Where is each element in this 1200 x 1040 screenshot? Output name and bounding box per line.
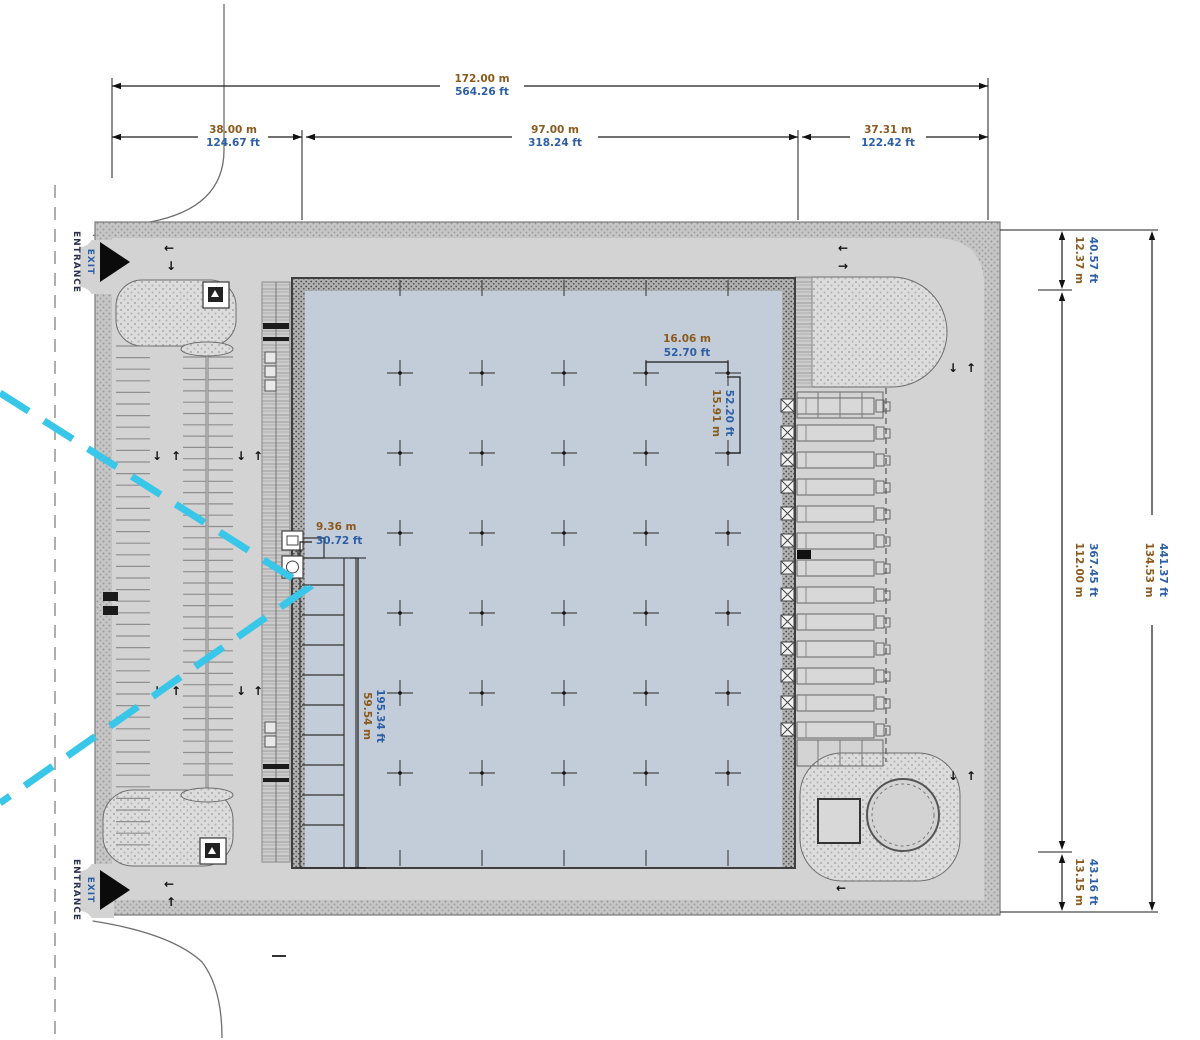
arrow-up-icon: ↑ [966,769,976,783]
column-point [480,611,484,615]
column-point [726,531,730,535]
dock-equipment-mark [797,550,811,559]
trailer [797,425,874,441]
trailer [797,452,874,468]
dim-north-setback-m: 12.37 m [1073,236,1085,284]
gatehouse-top [203,282,229,308]
dim-office-length-ft: 195.34 ft [374,689,386,743]
truck-cab [876,589,884,601]
dim-office-width-m: 9.36 m [316,521,357,533]
arrow-left-icon: ← [164,241,174,255]
column-point [562,451,566,455]
landscape-pond-top-right [812,277,947,387]
gatehouse-bottom [200,838,226,864]
column-point [398,371,402,375]
column-point [398,451,402,455]
dimension-arrowhead [979,83,988,89]
dim-bay-width-m: 16.06 m [663,333,711,345]
column-point [644,691,648,695]
truck-cab [876,508,884,520]
column-point [398,531,402,535]
dimension-arrowhead [1149,231,1155,240]
truck-cab [884,726,890,735]
dimension-arrowhead [1059,841,1065,850]
utility-yard-bottom-right [800,753,960,881]
truck-cab [876,481,884,493]
exit-label: EXIT [85,249,95,276]
trailer [797,641,874,657]
trailer [797,614,874,630]
dim-building-depth-ft: 367.45 ft [1087,543,1099,597]
arrow-down-icon: ↓ [152,449,162,463]
truck-cab [884,456,890,465]
arrow-down-icon: ↓ [948,361,958,375]
truck-cab [884,429,890,438]
column-point [726,611,730,615]
arrow-down-icon: ↓ [948,769,958,783]
truck-cab [884,699,890,708]
trailer [797,668,874,684]
exit-label: EXIT [85,877,95,904]
arrow-left-icon: ← [164,877,174,891]
dimension-arrowhead [979,134,988,140]
column-point [726,771,730,775]
entrance-label: ENTRANCE [71,231,81,293]
column-point [644,771,648,775]
dimension-arrowhead [293,134,302,140]
dim-west-width-ft: 124.67 ft [206,137,260,149]
island-end-cap [181,342,233,356]
truck-cab [876,454,884,466]
trailer [797,479,874,495]
warehouse-building [282,278,795,868]
trailer [797,560,874,576]
arrow-left-icon: ← [836,881,846,895]
truck-cab [876,643,884,655]
dim-total-depth-ft: 441.37 ft [1157,543,1169,597]
truck-cab [876,724,884,736]
truck-cab [876,616,884,628]
dim-east-width-ft: 122.42 ft [861,137,915,149]
arrow-right-icon: → [838,259,848,273]
road-edge-top [86,4,224,238]
truck-cab [876,697,884,709]
dim-south-setback-m: 13.15 m [1073,858,1085,906]
truck-cab [876,535,884,547]
dimension-arrowhead [1059,292,1065,301]
dimension-arrowhead [112,83,121,89]
dim-total-width-ft: 564.26 ft [455,86,509,98]
building-floor [292,278,795,868]
truck-cab [884,672,890,681]
column-point [644,531,648,535]
dim-mid-width-m: 97.00 m [531,124,579,136]
entrance-label: ENTRANCE [71,859,81,921]
dim-office-width-ft: 30.72 ft [316,535,362,547]
column-point [562,531,566,535]
arrow-down-icon: ↓ [166,259,176,273]
dimension-arrowhead [802,134,811,140]
dim-east-width-m: 37.31 m [864,124,912,136]
truck-cab [884,402,890,411]
dim-total-depth-m: 134.53 m [1143,542,1155,597]
column-point [726,691,730,695]
dim-mid-width-ft: 318.24 ft [528,137,582,149]
column-point [562,371,566,375]
column-point [398,771,402,775]
column-point [480,691,484,695]
truck-cab [876,562,884,574]
arrow-up-icon: ↑ [253,684,263,698]
truck-cab [876,427,884,439]
dim-building-depth-m: 112.00 m [1073,542,1085,597]
column-point [480,371,484,375]
dimension-arrowhead [1059,231,1065,240]
trailer [797,533,874,549]
column-point [644,611,648,615]
column-point [562,691,566,695]
arrow-up-icon: ↑ [166,895,176,909]
truck-cab [876,670,884,682]
dimension-arrowhead [1059,902,1065,911]
dim-west-width-m: 38.00 m [209,124,257,136]
road-edge-bottom [86,920,222,1038]
arrow-up-icon: ↑ [253,449,263,463]
column-point [398,691,402,695]
trailer [797,587,874,603]
column-point [398,611,402,615]
dim-bay-depth-m: 15.91 m [710,389,722,437]
dim-total-width-m: 172.00 m [454,73,509,85]
column-point [480,771,484,775]
dimension-arrowhead [112,134,121,140]
dimension-arrowhead [1059,854,1065,863]
dim-bay-width-ft: 52.70 ft [664,347,710,359]
column-point [480,531,484,535]
arrow-down-icon: ↓ [236,449,246,463]
truck-cab [884,618,890,627]
trailer [797,506,874,522]
island-end-cap [181,788,233,802]
truck-cab [884,564,890,573]
site-plan-drawing: ← ↓ ← ↑ ↓ ↑ ↓ ↑ ↓ ↑ ↓ ↑ ← → ↓ ↑ ↓ ↑ ← EN… [0,0,1200,1040]
arrow-left-icon: ← [838,241,848,255]
truck-cab [884,510,890,519]
dim-south-setback-ft: 43.16 ft [1087,859,1099,905]
arrow-up-icon: ↑ [966,361,976,375]
building-wall-north [292,278,795,291]
water-tank-circle [867,779,939,851]
dim-bay-depth-ft: 52.20 ft [723,390,735,436]
dim-north-setback-ft: 40.57 ft [1087,237,1099,283]
arrow-down-icon: ↓ [236,684,246,698]
trailer [797,695,874,711]
column-point [562,611,566,615]
dim-office-length-m: 59.54 m [361,692,373,740]
truck-cab [884,483,890,492]
arrow-up-icon: ↑ [171,449,181,463]
dimension-arrowhead [1149,902,1155,911]
truck-cab [884,537,890,546]
column-point [562,771,566,775]
dimension-arrowhead [306,134,315,140]
truck-cab [884,645,890,654]
column-point [644,451,648,455]
pump-house-pad [818,799,860,843]
column-point [480,451,484,455]
trailer [797,722,874,738]
landscape-strip-northeast [795,277,812,387]
dimension-arrowhead [789,134,798,140]
dimension-arrowhead [1059,280,1065,289]
truck-cab [884,591,890,600]
